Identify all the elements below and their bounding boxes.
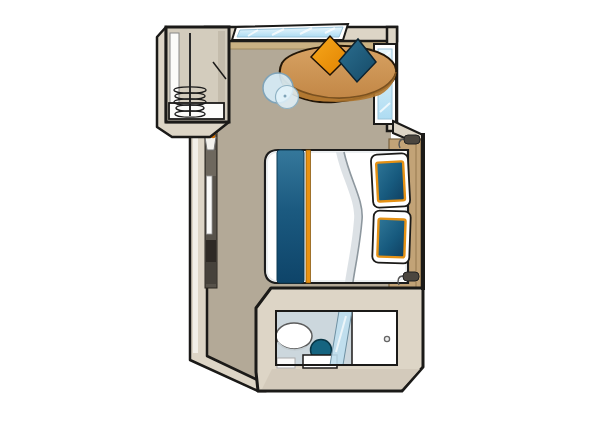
- vanity-mirror: [207, 176, 213, 234]
- vanity-drawer-light: [206, 262, 216, 284]
- left-wall-highlight: [193, 138, 198, 353]
- vanity-mid-shelf: [206, 150, 216, 176]
- lamp-head: [403, 272, 419, 281]
- wardrobe-shadow-right: [218, 31, 225, 103]
- bathroom-bevel-face: [262, 369, 420, 389]
- table-center-dot: [284, 95, 287, 98]
- wardrobe: [157, 27, 229, 137]
- floor-plan-page: [0, 0, 600, 422]
- pillow-lower: [372, 210, 411, 263]
- pillow-lower-inset: [377, 219, 405, 258]
- bathroom: [256, 288, 423, 391]
- flower-pot-body: [205, 137, 216, 150]
- bath-mat: [277, 358, 295, 368]
- vanity-drawer-dark: [206, 240, 216, 262]
- pillow-upper-inset: [376, 161, 405, 201]
- bed-runner-teal: [277, 150, 304, 283]
- pillow-upper: [371, 153, 411, 208]
- bed-runner-orange-trim: [306, 150, 311, 283]
- table-lower-shelf: [276, 86, 299, 109]
- lamp-head: [404, 135, 420, 144]
- entrance-door: [352, 311, 397, 365]
- door-knob: [384, 336, 389, 341]
- vanity-console: [205, 128, 217, 288]
- floor-plan-canvas: [0, 0, 600, 422]
